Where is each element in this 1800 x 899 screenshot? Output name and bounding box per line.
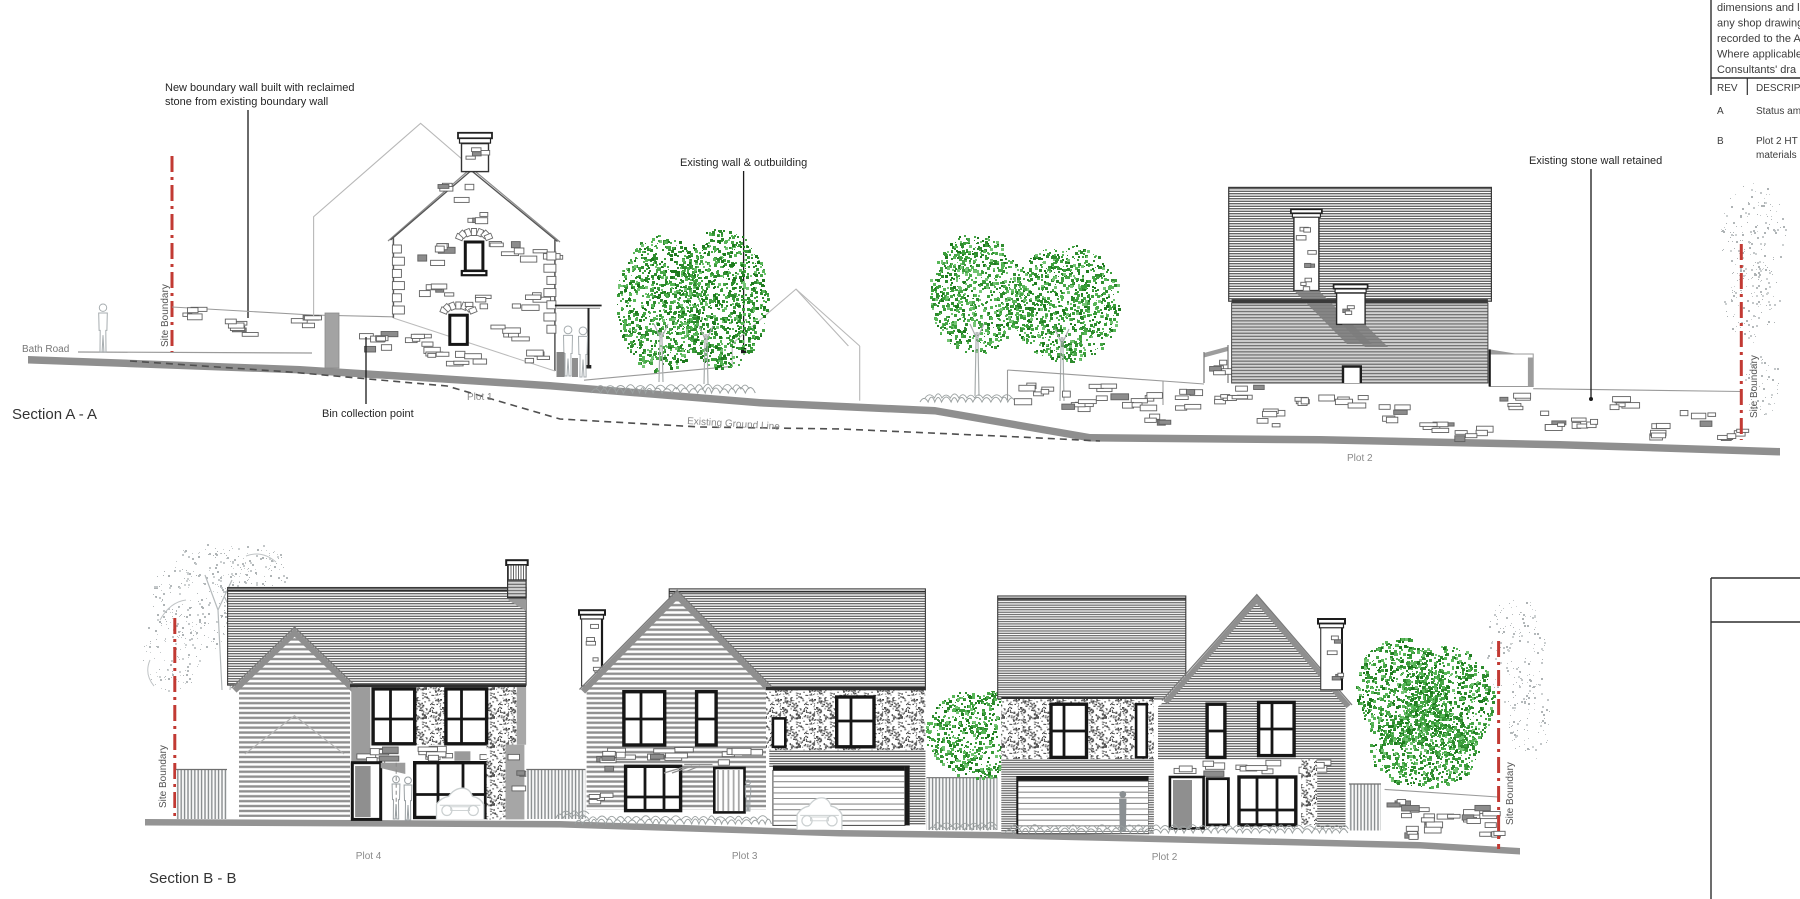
svg-text:dimensions and lev: dimensions and lev: [1717, 2, 1800, 14]
svg-text:Plot 4: Plot 4: [356, 851, 382, 862]
svg-text:A: A: [1717, 106, 1724, 117]
svg-text:Bath Road: Bath Road: [22, 344, 69, 355]
svg-text:stone from existing boundary w: stone from existing boundary wall: [165, 96, 328, 108]
svg-text:Existing Ground Line: Existing Ground Line: [687, 416, 781, 433]
svg-text:Section B - B: Section B - B: [149, 870, 237, 887]
svg-text:Consultants' dra: Consultants' dra: [1717, 64, 1797, 76]
svg-text:Bin collection point: Bin collection point: [322, 408, 414, 420]
svg-text:Site Boundary: Site Boundary: [160, 284, 171, 347]
svg-text:Site Boundary: Site Boundary: [1749, 355, 1760, 418]
svg-text:Plot 1: Plot 1: [467, 392, 493, 403]
svg-text:any shop drawing: any shop drawing: [1717, 18, 1800, 30]
svg-text:B: B: [1717, 136, 1724, 147]
svg-text:New boundary wall built with r: New boundary wall built with reclaimed: [165, 82, 355, 94]
svg-text:Site Boundary: Site Boundary: [158, 745, 169, 808]
svg-text:Plot 2 HT u: Plot 2 HT u: [1756, 136, 1800, 147]
svg-text:Existing stone wall retained: Existing stone wall retained: [1529, 155, 1662, 167]
svg-text:Section A - A: Section A - A: [12, 406, 97, 423]
svg-text:Site Boundary: Site Boundary: [1505, 762, 1516, 825]
svg-text:Plot 2: Plot 2: [1152, 852, 1178, 863]
svg-text:Status ame: Status ame: [1756, 106, 1800, 117]
svg-text:recorded to the A: recorded to the A: [1717, 33, 1800, 45]
svg-text:Where applicable: Where applicable: [1717, 49, 1800, 61]
svg-text:REV: REV: [1717, 83, 1738, 94]
svg-text:Plot 3: Plot 3: [732, 851, 758, 862]
svg-text:materials u: materials u: [1756, 150, 1800, 161]
svg-text:Existing wall & outbuilding: Existing wall & outbuilding: [680, 157, 807, 169]
svg-text:DESCRIP: DESCRIP: [1756, 83, 1800, 94]
svg-text:Plot 2: Plot 2: [1347, 453, 1373, 464]
